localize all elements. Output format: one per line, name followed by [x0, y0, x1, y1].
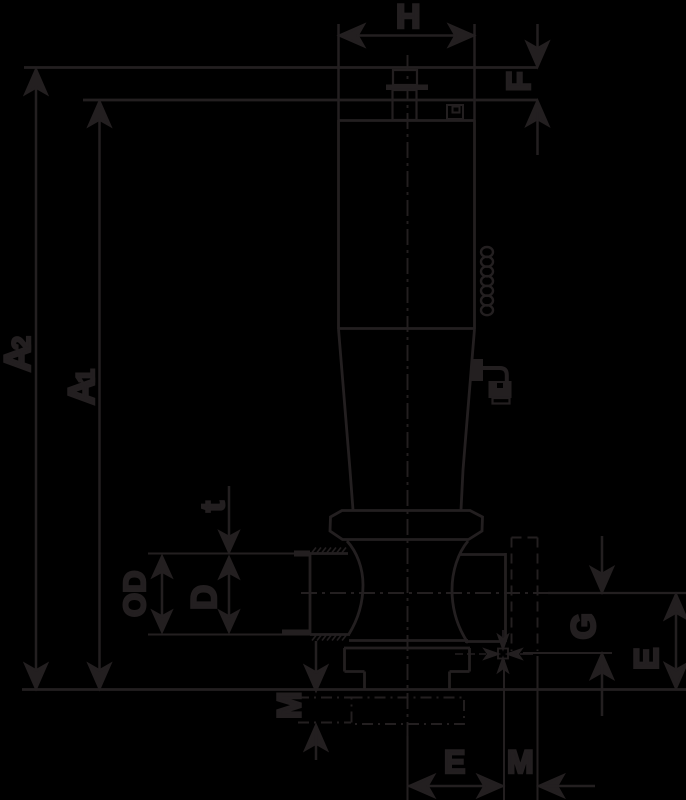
svg-text:G: G	[565, 613, 603, 639]
svg-text:M: M	[507, 744, 534, 780]
svg-text:t: t	[194, 501, 231, 512]
svg-text:E: E	[444, 744, 465, 780]
svg-text:2: 2	[8, 336, 36, 350]
svg-text:D: D	[185, 585, 224, 610]
svg-text:M: M	[271, 692, 308, 720]
svg-text:1: 1	[72, 369, 100, 383]
svg-text:H: H	[396, 0, 421, 36]
svg-text:F: F	[500, 71, 537, 91]
svg-text:OD: OD	[117, 571, 152, 618]
svg-text:E: E	[628, 647, 666, 670]
